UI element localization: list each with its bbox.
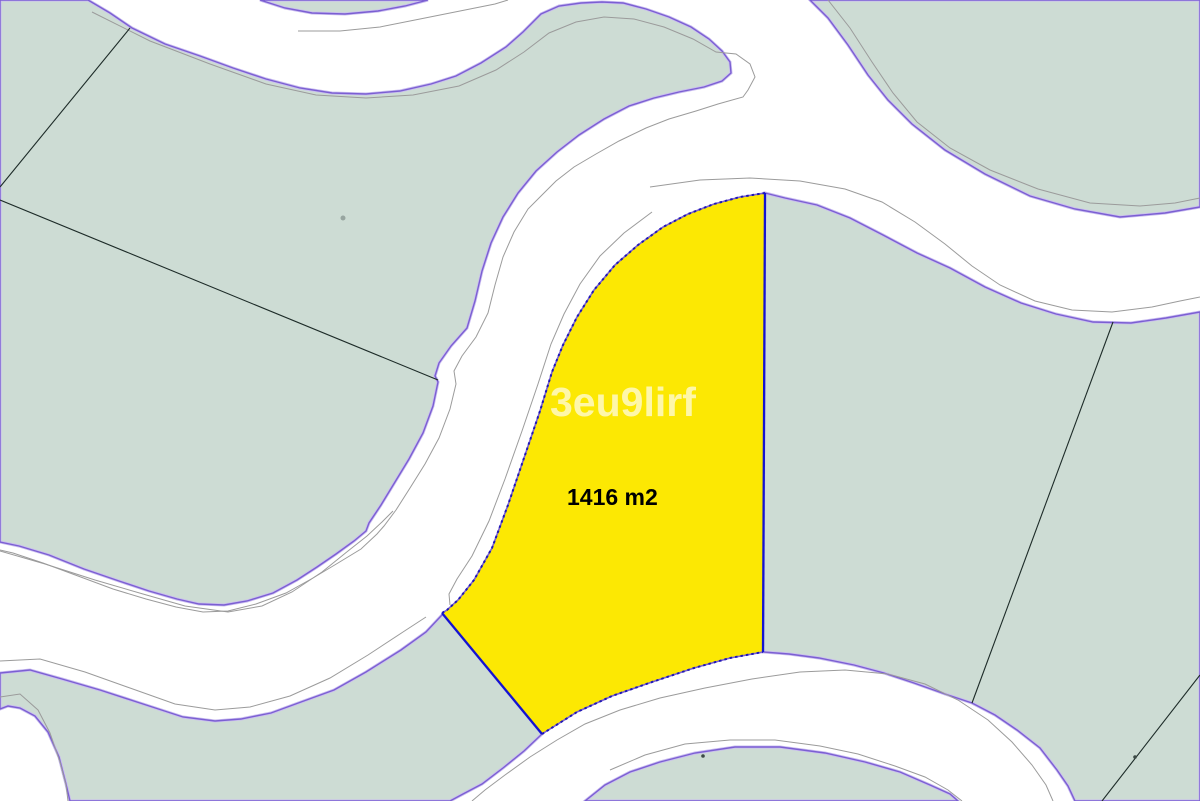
survey-point-dot (341, 216, 346, 221)
cadastral-map-viewport[interactable]: 3eu9lirf 1416 m2 (0, 0, 1200, 801)
survey-point-dot (701, 754, 705, 758)
cadastral-map-canvas[interactable] (0, 0, 1200, 801)
parcel-area-label: 1416 m2 (567, 486, 658, 509)
survey-point-dot (1133, 755, 1137, 759)
